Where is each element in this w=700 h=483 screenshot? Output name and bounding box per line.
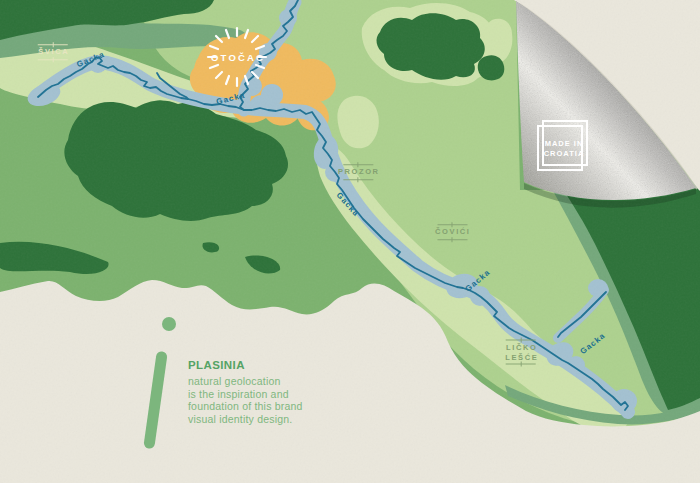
i-marker-dot-icon xyxy=(162,317,176,331)
map-illustration xyxy=(0,0,700,483)
poster: ŠVICA PROZOR ČOVIĆI LIČKO LEŠĆE OTOČAC G… xyxy=(0,0,700,483)
paper-grain xyxy=(0,0,700,483)
